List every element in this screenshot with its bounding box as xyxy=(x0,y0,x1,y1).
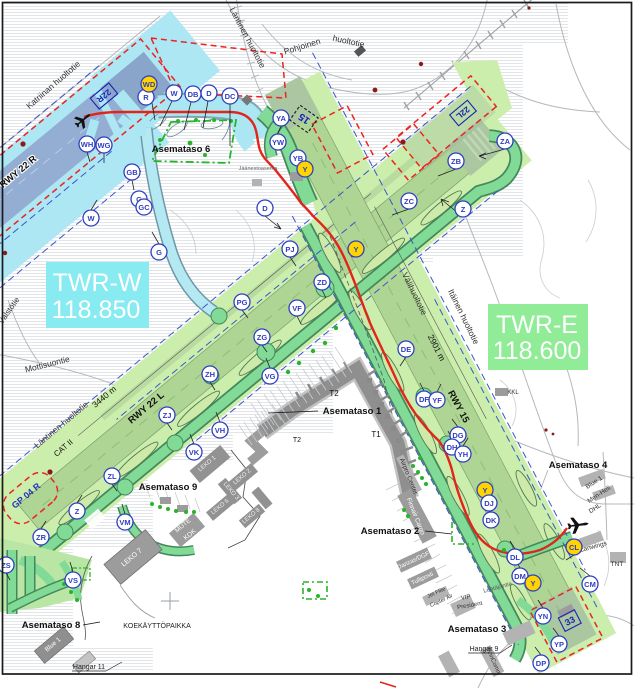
svg-text:Asemataso 9: Asemataso 9 xyxy=(139,482,198,493)
svg-text:VS: VS xyxy=(68,576,78,585)
svg-text:118.600: 118.600 xyxy=(493,337,582,365)
svg-text:D: D xyxy=(206,89,212,98)
svg-text:YH: YH xyxy=(458,450,468,459)
svg-text:DL: DL xyxy=(510,553,520,562)
svg-text:YF: YF xyxy=(432,396,442,405)
svg-text:CM: CM xyxy=(584,580,596,589)
svg-text:T2: T2 xyxy=(293,437,301,444)
svg-text:Z: Z xyxy=(75,507,80,516)
svg-text:DB: DB xyxy=(188,90,199,99)
svg-text:Asemataso 4: Asemataso 4 xyxy=(549,460,608,471)
svg-text:ZH: ZH xyxy=(205,370,215,379)
svg-text:ZD: ZD xyxy=(317,278,328,287)
svg-text:ZL: ZL xyxy=(107,472,117,481)
svg-text:VM: VM xyxy=(119,518,130,527)
svg-text:TWR-W: TWR-W xyxy=(53,269,142,297)
svg-text:DK: DK xyxy=(486,516,497,525)
svg-text:ZA: ZA xyxy=(500,137,511,146)
svg-text:W: W xyxy=(87,214,95,223)
svg-text:GC: GC xyxy=(138,203,150,212)
svg-text:118.850: 118.850 xyxy=(52,296,141,324)
svg-text:KKL: KKL xyxy=(507,390,519,396)
svg-text:W: W xyxy=(170,89,178,98)
svg-text:WG: WG xyxy=(98,141,111,150)
svg-text:TWR-E: TWR-E xyxy=(496,311,578,339)
svg-text:WH: WH xyxy=(81,140,94,149)
svg-text:PJ: PJ xyxy=(285,245,294,254)
svg-text:YW: YW xyxy=(272,138,285,147)
svg-text:Asemataso 3: Asemataso 3 xyxy=(448,624,507,635)
svg-text:T2: T2 xyxy=(329,389,339,398)
svg-text:ZC: ZC xyxy=(404,197,415,206)
svg-text:VH: VH xyxy=(215,426,225,435)
svg-text:Asemataso 6: Asemataso 6 xyxy=(152,144,211,155)
svg-text:Asemataso 1: Asemataso 1 xyxy=(323,406,382,417)
svg-text:CL: CL xyxy=(569,543,579,552)
svg-text:R: R xyxy=(143,93,149,102)
svg-text:Hangar 11: Hangar 11 xyxy=(73,664,105,671)
svg-text:DP: DP xyxy=(536,659,546,668)
svg-text:GB: GB xyxy=(126,168,138,177)
svg-text:PG: PG xyxy=(237,298,248,307)
svg-text:YN: YN xyxy=(538,612,548,621)
svg-text:VF: VF xyxy=(292,304,302,313)
svg-text:TNT: TNT xyxy=(611,561,624,568)
svg-text:Hangar 9: Hangar 9 xyxy=(470,646,499,653)
svg-text:DF: DF xyxy=(419,395,429,404)
svg-text:DE: DE xyxy=(401,345,411,354)
svg-text:ZG: ZG xyxy=(257,333,268,342)
svg-text:Y: Y xyxy=(530,579,535,588)
svg-text:ZB: ZB xyxy=(451,157,462,166)
svg-text:DJ: DJ xyxy=(484,499,494,508)
svg-text:VK: VK xyxy=(189,448,200,457)
svg-text:KOEKÄYTTÖPAIKKA: KOEKÄYTTÖPAIKKA xyxy=(123,622,191,630)
svg-text:D: D xyxy=(262,204,268,213)
svg-text:Asemataso 2: Asemataso 2 xyxy=(361,526,420,537)
svg-text:ZR: ZR xyxy=(36,533,47,542)
svg-text:Jäänestoasema: Jäänestoasema xyxy=(239,166,279,172)
svg-text:T1: T1 xyxy=(371,430,381,439)
svg-text:YA: YA xyxy=(276,114,286,123)
svg-text:Y: Y xyxy=(353,245,358,254)
svg-text:ZJ: ZJ xyxy=(163,411,172,420)
svg-text:Y: Y xyxy=(302,165,307,174)
svg-text:DG: DG xyxy=(452,431,463,440)
svg-text:Asemataso 8: Asemataso 8 xyxy=(22,620,81,631)
svg-text:DM: DM xyxy=(514,572,526,581)
svg-text:Z: Z xyxy=(461,205,466,214)
svg-text:VG: VG xyxy=(265,372,276,381)
svg-text:YP: YP xyxy=(554,640,564,649)
svg-text:DC: DC xyxy=(225,92,236,101)
svg-text:WD: WD xyxy=(143,80,156,89)
svg-text:G: G xyxy=(156,248,162,257)
svg-text:Y: Y xyxy=(482,486,487,495)
